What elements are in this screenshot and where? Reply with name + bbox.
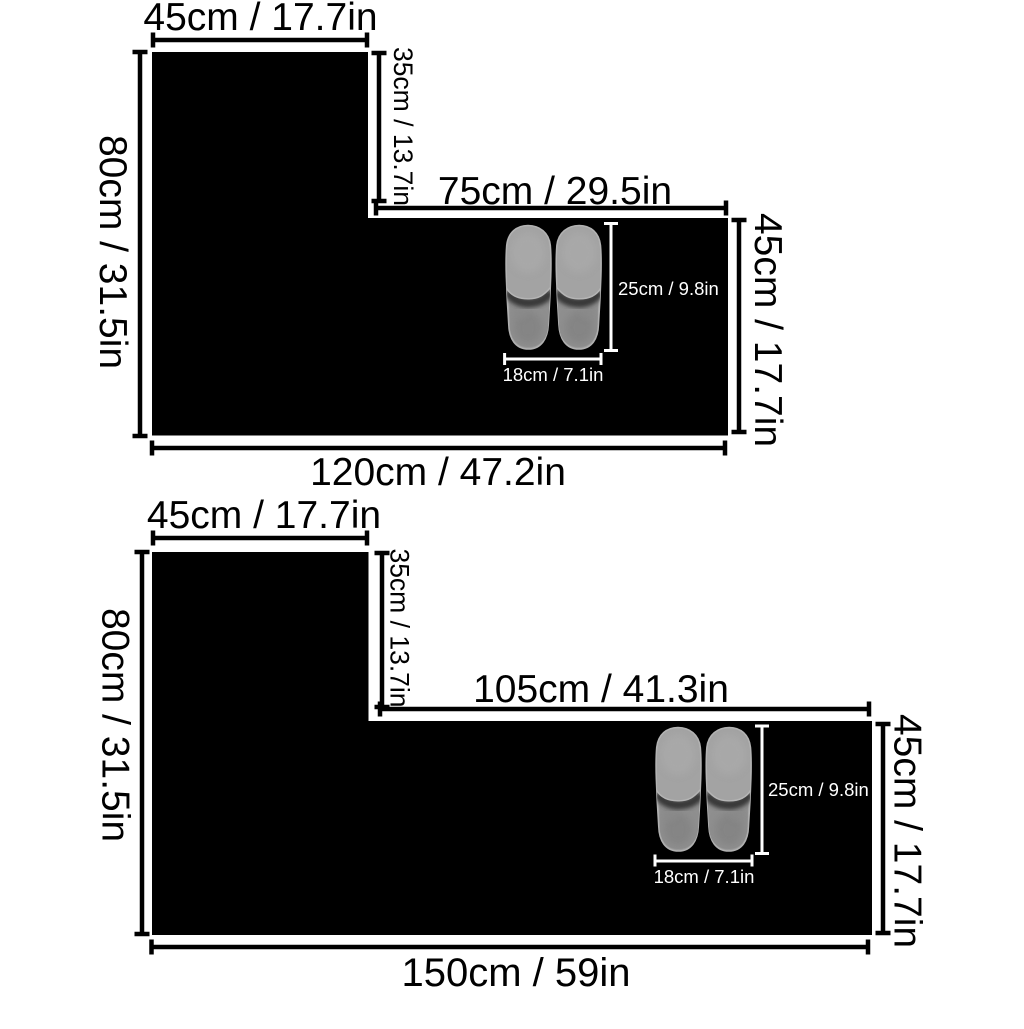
svg-text:35cm / 13.7in: 35cm / 13.7in — [388, 47, 418, 206]
svg-text:25cm / 9.8in: 25cm / 9.8in — [618, 278, 719, 299]
svg-text:45cm / 17.7in: 45cm / 17.7in — [886, 714, 929, 948]
svg-text:75cm / 29.5in: 75cm / 29.5in — [438, 170, 672, 213]
svg-text:18cm / 7.1in: 18cm / 7.1in — [503, 364, 604, 385]
svg-text:80cm / 31.5in: 80cm / 31.5in — [94, 608, 137, 842]
svg-text:45cm / 17.7in: 45cm / 17.7in — [143, 0, 377, 39]
svg-text:35cm / 13.7in: 35cm / 13.7in — [384, 548, 414, 707]
svg-text:105cm / 41.3in: 105cm / 41.3in — [473, 668, 729, 711]
svg-text:45cm / 17.7in: 45cm / 17.7in — [147, 494, 381, 537]
svg-text:120cm / 47.2in: 120cm / 47.2in — [310, 451, 566, 494]
svg-text:80cm / 31.5in: 80cm / 31.5in — [91, 135, 134, 369]
svg-text:45cm / 17.7in: 45cm / 17.7in — [746, 213, 789, 447]
svg-text:150cm / 59in: 150cm / 59in — [401, 951, 630, 995]
svg-text:25cm / 9.8in: 25cm / 9.8in — [768, 779, 869, 800]
svg-text:18cm / 7.1in: 18cm / 7.1in — [654, 866, 755, 887]
